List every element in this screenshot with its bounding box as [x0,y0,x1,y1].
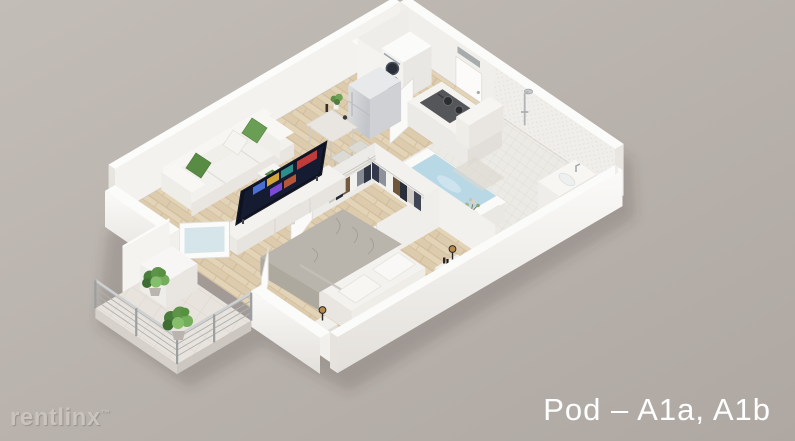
amber-lamp [449,246,456,253]
floorplan-screenshot: rentlinx™ Pod – A1a, A1b [0,0,795,441]
bowl [343,115,347,119]
pan [455,106,463,114]
floorplan-render: rentlinx™ Pod – A1a, A1b [0,0,795,441]
wine-bottle [326,104,329,112]
pan [444,97,453,106]
bottle [443,258,445,264]
unit-caption: Pod – A1a, A1b [543,392,771,427]
door-handle [477,91,480,94]
door-glass [185,226,225,253]
watermark: rentlinx™ [10,404,110,431]
amber-lamp [319,307,326,314]
